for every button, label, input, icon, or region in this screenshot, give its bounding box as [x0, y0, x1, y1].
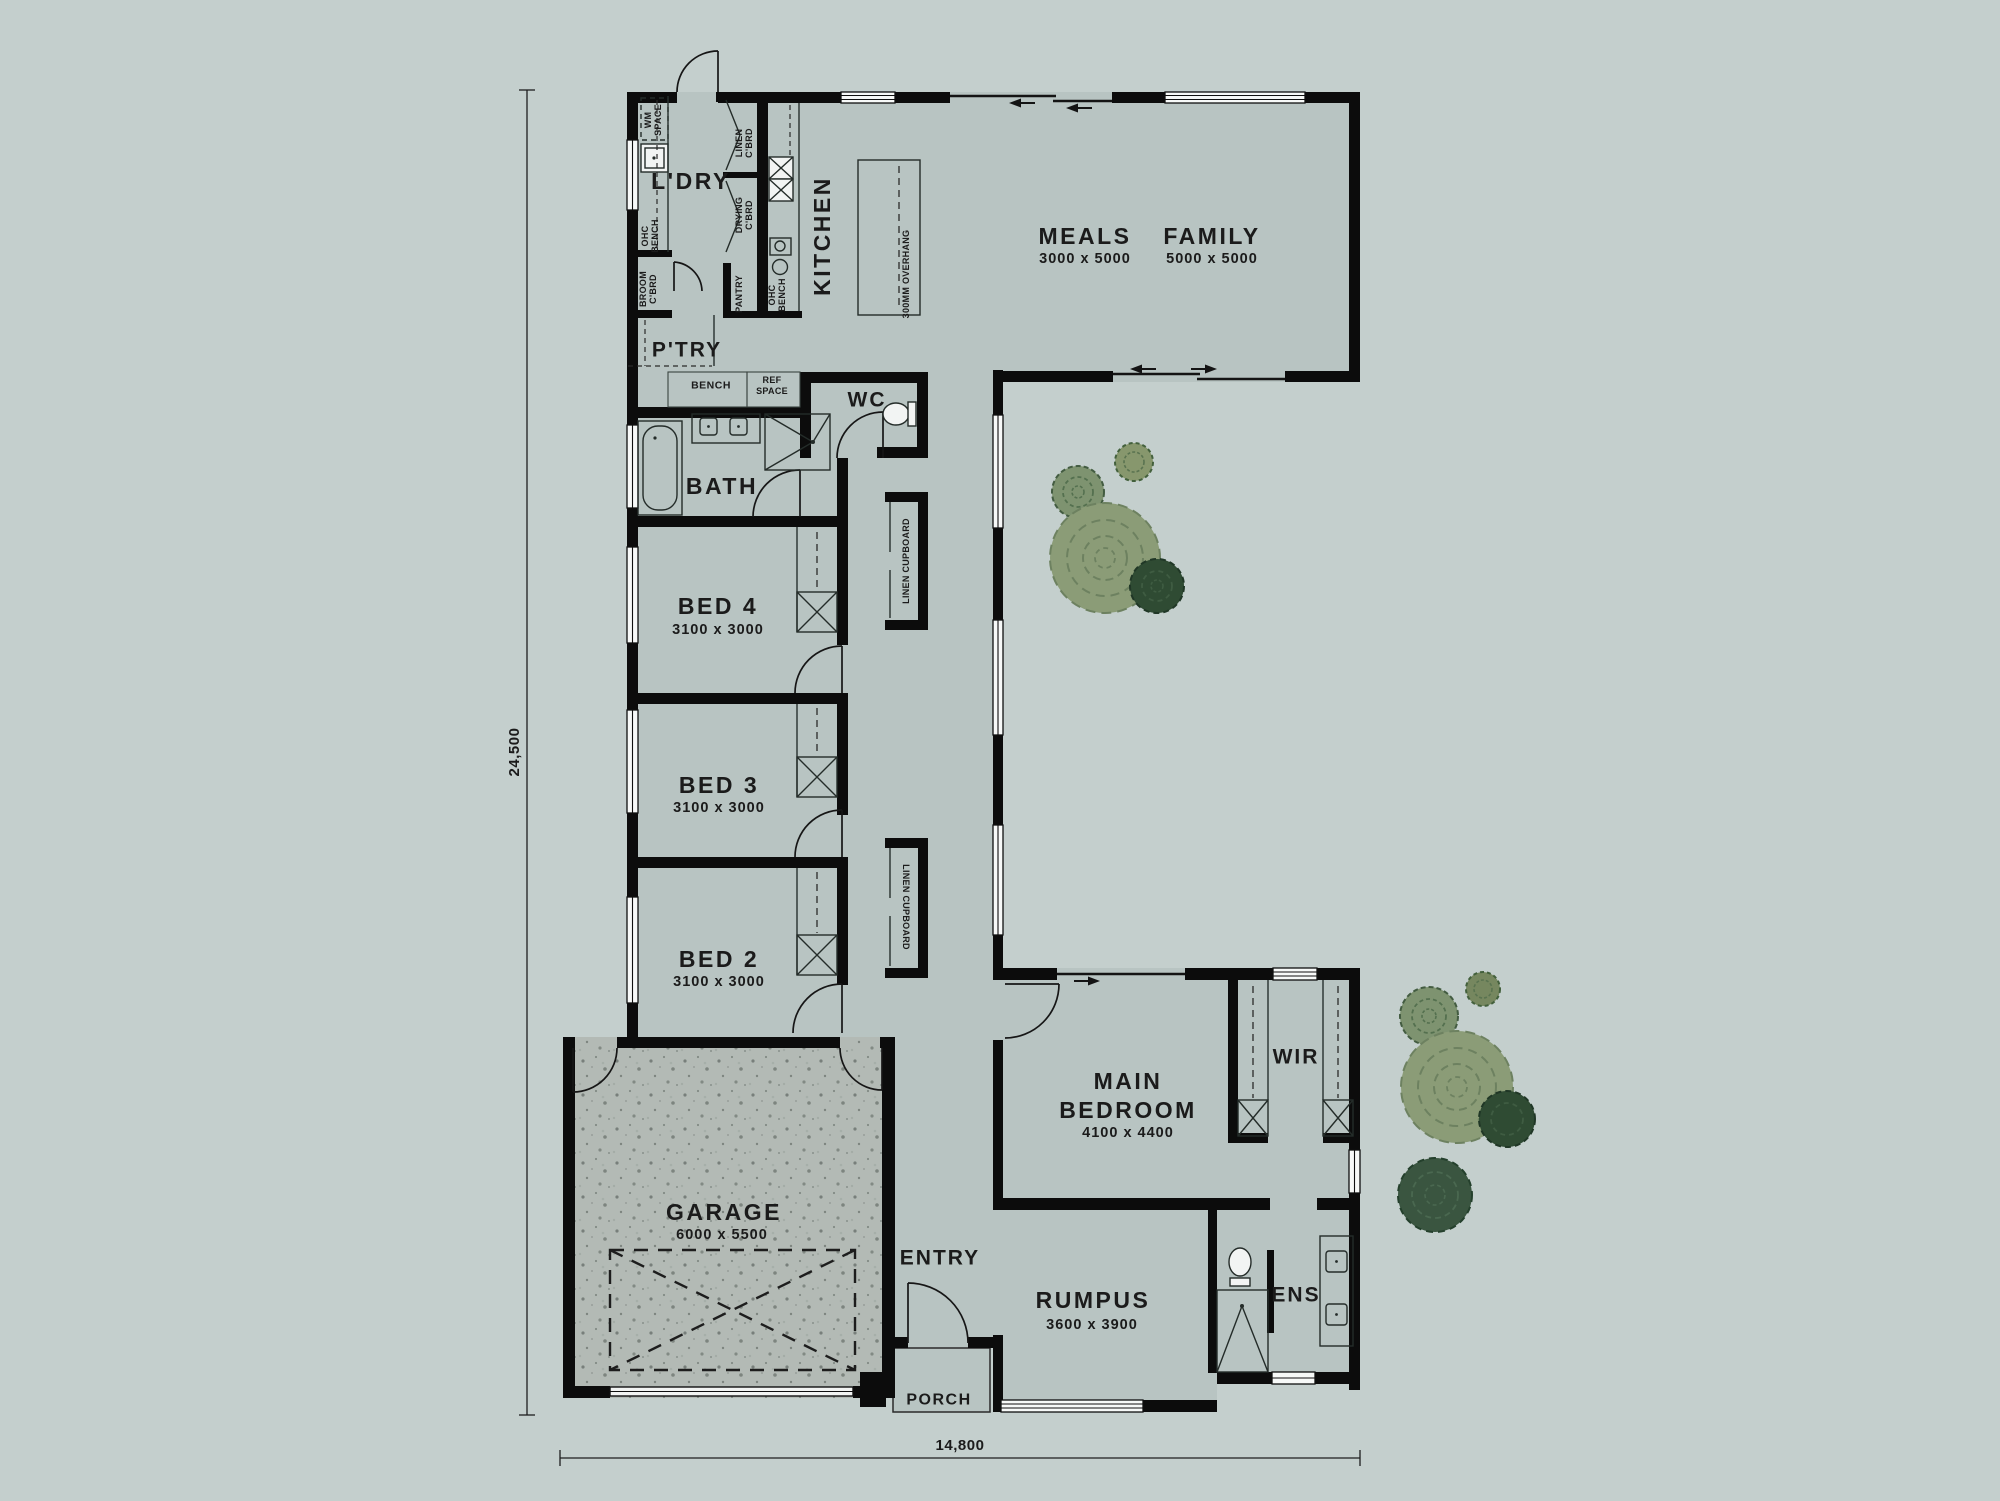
- window: [1272, 1372, 1315, 1384]
- label-kitchen: KITCHEN: [809, 176, 835, 296]
- label-drying-cbrd: DRYINGC'BRD: [734, 197, 754, 233]
- floor-main-bedroom: [993, 968, 1360, 1210]
- label-linen-cbrd: LINENC'BRD: [734, 128, 754, 158]
- dimension-height: 24,500: [506, 728, 523, 777]
- window: [627, 710, 638, 813]
- label-rumpus: RUMPUS: [1036, 1287, 1151, 1313]
- window: [993, 620, 1003, 735]
- label-wir: WIR: [1273, 1045, 1320, 1068]
- label-garage: GARAGE: [666, 1199, 782, 1225]
- label-ldry: L'DRY: [651, 168, 731, 194]
- label-bed4: BED 4: [678, 593, 758, 619]
- dimension-width: 14,800: [936, 1437, 985, 1454]
- dims-main-bedroom: 4100 x 4400: [1082, 1125, 1174, 1141]
- window: [627, 897, 638, 1003]
- label-ens: ENS: [1271, 1283, 1320, 1306]
- window: [1349, 1150, 1360, 1193]
- tree: [1130, 559, 1184, 613]
- label-bench: BENCH: [691, 380, 731, 392]
- label-bed3: BED 3: [679, 772, 759, 798]
- label-entry: ENTRY: [900, 1246, 980, 1269]
- cooktop-icon: [769, 157, 793, 201]
- label-broom-cbrd: BROOMC'BRD: [638, 271, 658, 307]
- toilet-icon: [1229, 1248, 1251, 1286]
- label-300mm-overhang: 300MM OVERHANG: [901, 230, 911, 319]
- label-bed2: BED 2: [679, 946, 759, 972]
- window: [1001, 1400, 1143, 1412]
- label-pantry: PANTRY: [734, 275, 744, 313]
- window: [1273, 968, 1317, 980]
- window: [627, 547, 638, 643]
- dims-garage: 6000 x 5500: [676, 1227, 768, 1243]
- label-linen-cupboard-1: LINEN CUPBOARD: [901, 518, 911, 604]
- garage-door: [610, 1387, 853, 1396]
- dims-family: 5000 x 5000: [1166, 251, 1258, 267]
- label-porch: PORCH: [906, 1392, 971, 1409]
- window: [993, 415, 1003, 528]
- door-laundry-external: [677, 51, 718, 92]
- label-family: FAMILY: [1163, 223, 1260, 249]
- dims-meals: 3000 x 5000: [1039, 251, 1131, 267]
- dims-bed3: 3100 x 3000: [673, 800, 765, 816]
- window: [627, 425, 638, 508]
- label-ptry: P'TRY: [652, 338, 722, 361]
- label-linen-cupboard-2: LINEN CUPBOARD: [901, 864, 911, 950]
- floor-plan: 24,500 14,800: [0, 0, 2000, 1501]
- window: [627, 140, 638, 210]
- window: [993, 825, 1003, 935]
- toilet-icon: [883, 402, 916, 426]
- floor-entry: [882, 1037, 1003, 1348]
- dims-rumpus: 3600 x 3900: [1046, 1317, 1138, 1333]
- label-bath: BATH: [686, 473, 758, 499]
- dims-bed4: 3100 x 3000: [672, 622, 764, 638]
- floor-plan-page: 24,500 14,800: [0, 0, 2000, 1501]
- label-meals: MEALS: [1039, 223, 1132, 249]
- tree: [1115, 443, 1153, 481]
- label-main-bedroom-2: BEDROOM: [1059, 1097, 1197, 1123]
- window: [1165, 92, 1305, 103]
- label-wc: WC: [848, 388, 887, 411]
- window: [841, 92, 895, 103]
- tree: [1466, 972, 1500, 1006]
- tree: [1398, 1158, 1472, 1232]
- dims-bed2: 3100 x 3000: [673, 974, 765, 990]
- label-main-bedroom-1: MAIN: [1094, 1068, 1163, 1094]
- tree: [1479, 1091, 1535, 1147]
- porch-pillar: [860, 1372, 886, 1407]
